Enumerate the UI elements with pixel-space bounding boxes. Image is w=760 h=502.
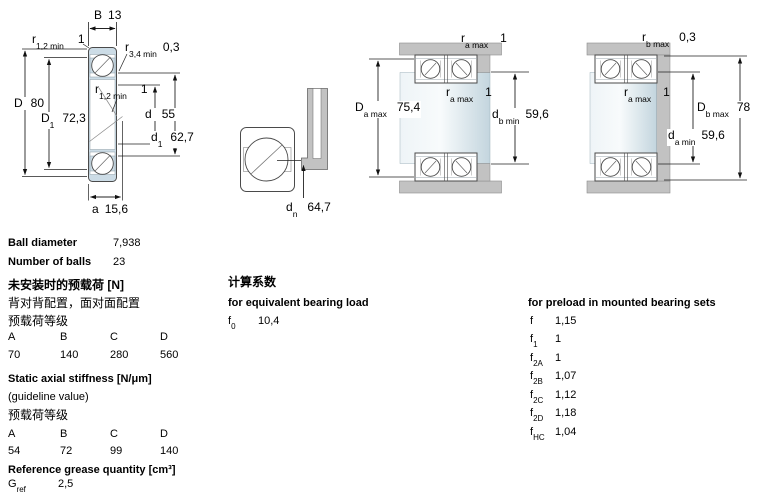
calc-factors-title: 计算系数 xyxy=(228,276,276,289)
number-of-balls-value: 23 xyxy=(113,256,125,269)
preload-unmounted-subtitle: 背对背配置，面对面配置 xyxy=(8,297,140,310)
factor-row-f2B: f2B1,07 xyxy=(530,370,543,386)
dim-label-r12-mid: r1,2 min1 xyxy=(95,83,148,100)
stiffness-class-label: 预载荷等级 xyxy=(8,409,68,422)
dim-label-ra-top: ra max1 xyxy=(461,32,507,49)
ball-diameter-row: Ball diameter7,938 xyxy=(8,237,77,250)
factor-row-f: f1,15 xyxy=(530,315,533,331)
dim-label-Da: Da max75,4 xyxy=(354,101,421,118)
grease-value: 2,5 xyxy=(58,478,73,491)
factor-row-f1: f11 xyxy=(530,333,538,349)
grease-row: Gref2,5 xyxy=(8,478,26,494)
dim-label-db: db min59,6 xyxy=(491,108,550,125)
factor-row-f2D: f2D1,18 xyxy=(530,407,543,423)
dim-label-dn: dn64,7 xyxy=(286,201,331,218)
dim-label-d: d55 xyxy=(144,108,176,121)
number-of-balls-row: Number of balls23 xyxy=(8,256,91,269)
stiffness-subtitle: (guideline value) xyxy=(8,391,89,404)
preload-unmounted-title: 未安装时的预载荷 [N] xyxy=(8,279,124,292)
dim-label-rb-top: rb max0,3 xyxy=(642,31,696,48)
calc-factors-subtitle: for equivalent bearing load xyxy=(228,297,369,310)
dim-label-ra-mid: ra max1 xyxy=(446,86,492,103)
preload-unmounted-class-label: 预载荷等级 xyxy=(8,315,68,328)
dim-label-r34: r3,4 min0,3 xyxy=(125,41,180,58)
dim-label-B: B13 xyxy=(94,9,121,26)
bearing-with-snap-ring-section xyxy=(241,89,328,199)
dim-label-D: D80 xyxy=(13,97,45,110)
dim-label-d1: d162,7 xyxy=(150,131,195,148)
factor-row-f2C: f2C1,12 xyxy=(530,389,543,405)
dim-label-r12-top: r1,2 min1 xyxy=(32,33,85,50)
grease-title: Reference grease quantity [cm³] xyxy=(8,464,176,477)
dim-label-a: a15,6 xyxy=(92,203,128,216)
dim-label-ra-mid2: ra max1 xyxy=(624,86,670,103)
dim-label-da: da min59,6 xyxy=(667,129,726,146)
ball-diameter-value: 7,938 xyxy=(113,237,141,250)
bearing-datasheet-page: B13 r1,2 min1 r3,4 min0,3 D80 D172,3 r1,… xyxy=(0,0,760,502)
factor-row-fHC: fHC1,04 xyxy=(530,426,545,442)
stiffness-title: Static axial stiffness [N/μm] xyxy=(8,373,152,386)
preload-factors-title: for preload in mounted bearing sets xyxy=(528,297,716,310)
factor-row-f2A: f2A1 xyxy=(530,352,543,368)
dim-label-D1: D172,3 xyxy=(40,112,87,129)
f0-value: 10,4 xyxy=(258,315,279,328)
dim-label-Db: Db max78 xyxy=(696,101,751,118)
f0-row: f010,4 xyxy=(228,315,236,331)
